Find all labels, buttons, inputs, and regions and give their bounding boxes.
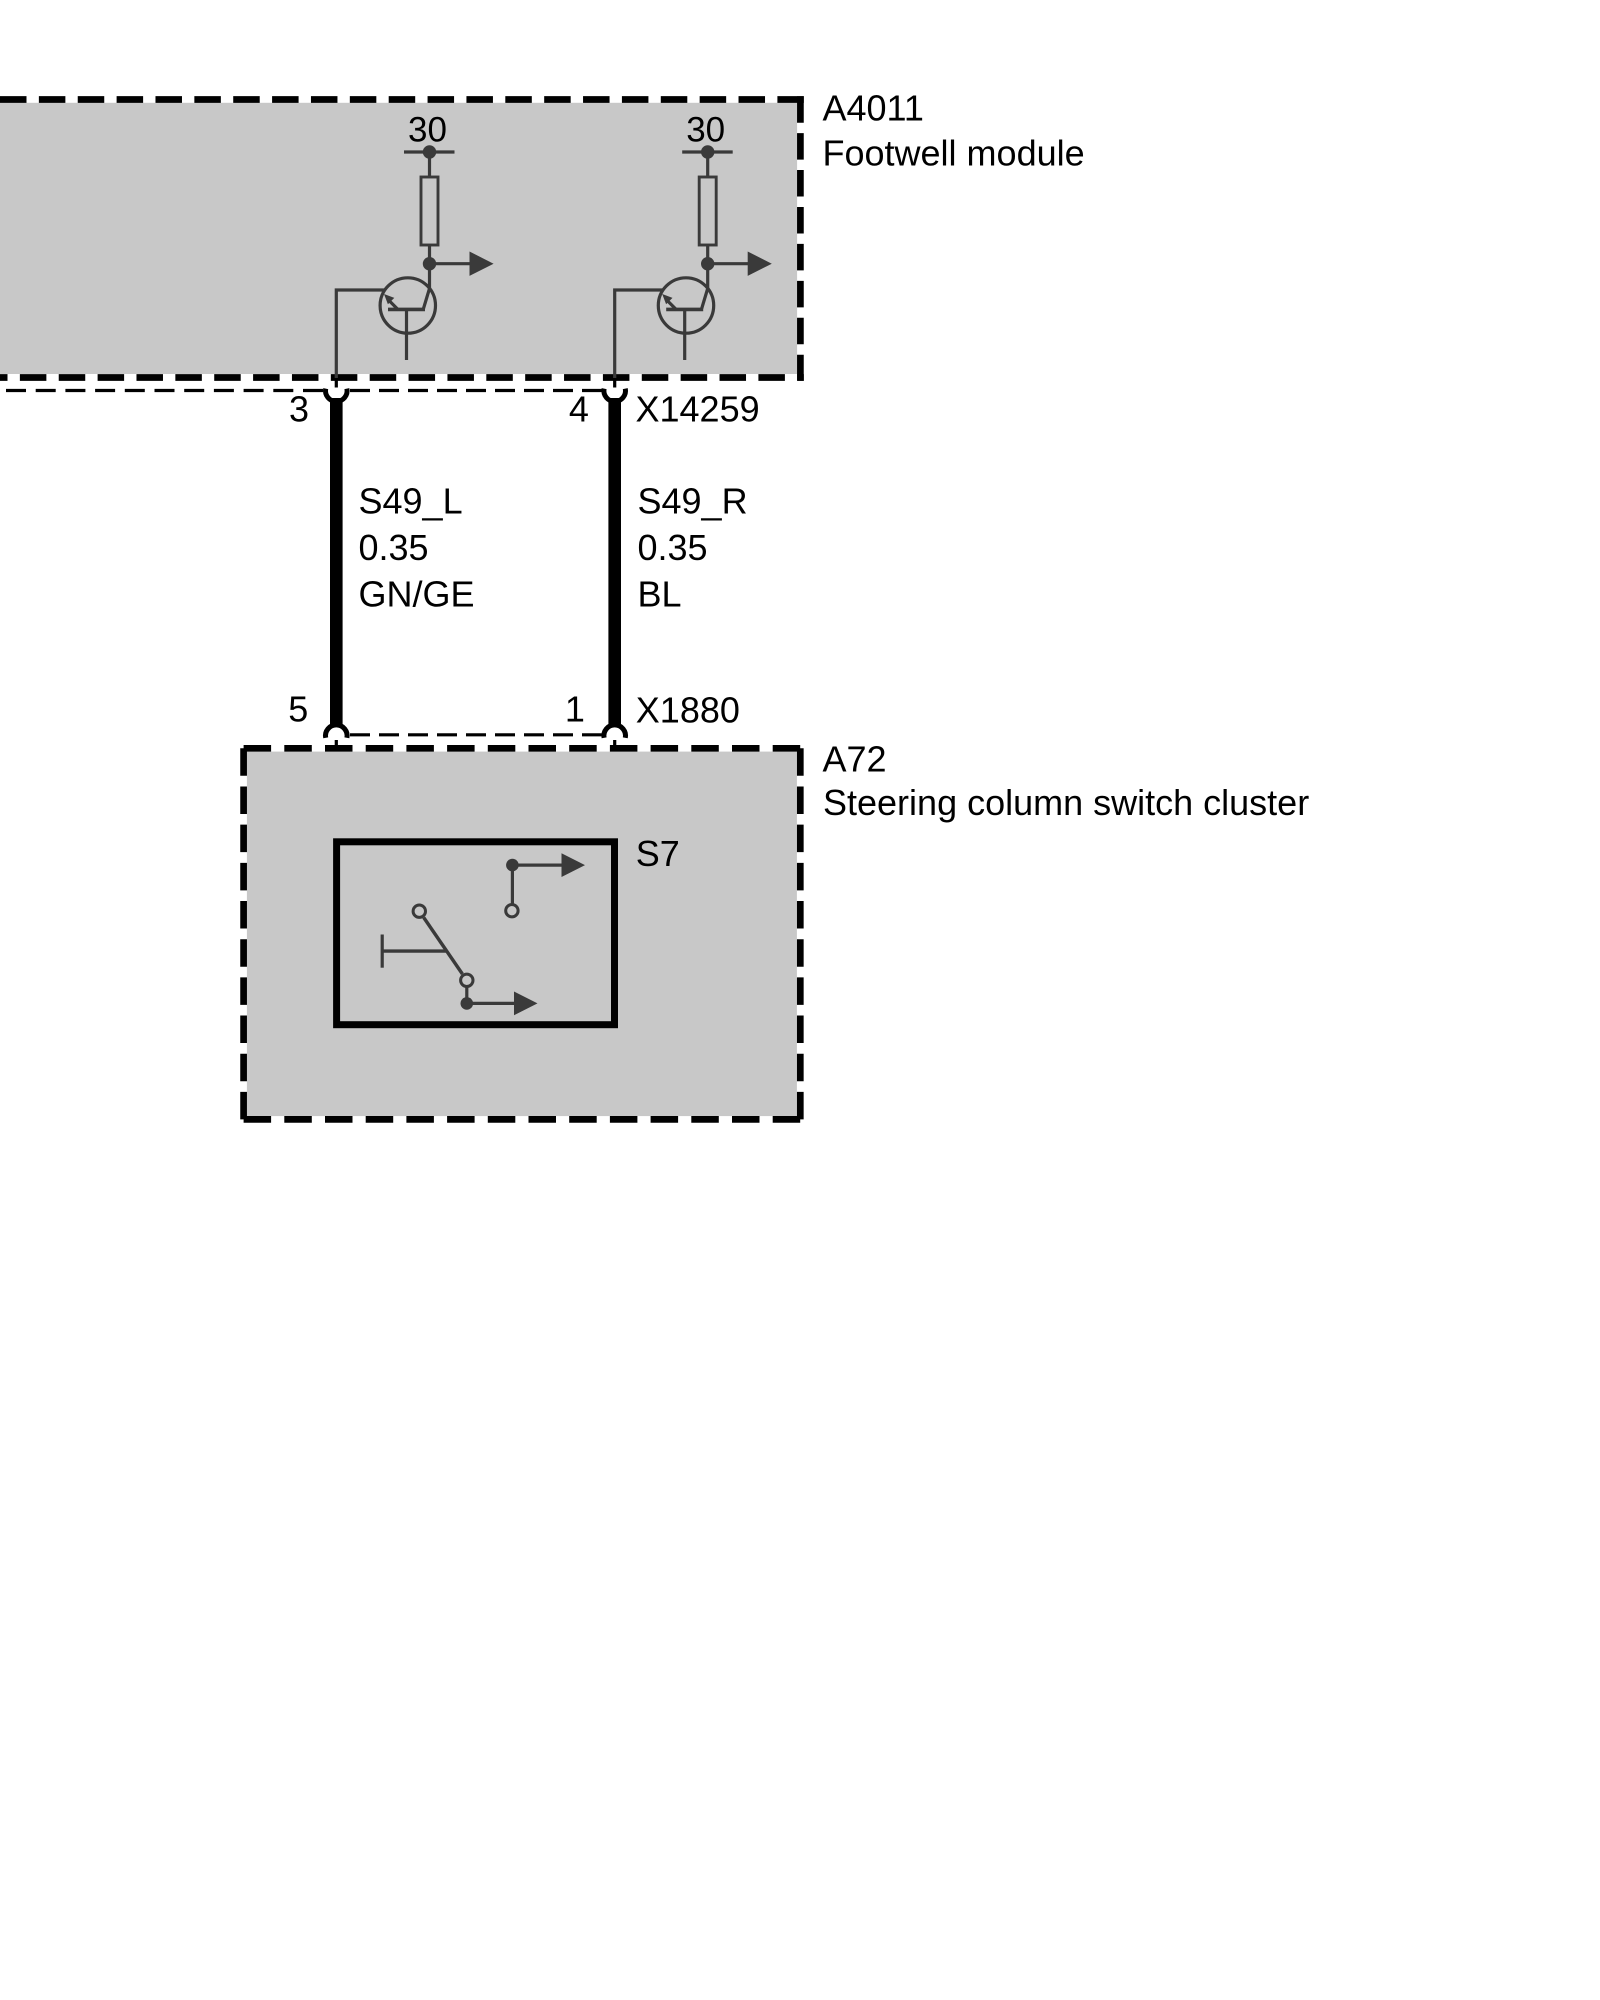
- svg-text:X1880: X1880: [636, 690, 740, 731]
- svg-text:GN/GE: GN/GE: [359, 574, 475, 615]
- svg-text:30: 30: [408, 111, 447, 150]
- svg-text:1: 1: [565, 689, 585, 730]
- svg-text:5: 5: [288, 689, 308, 730]
- svg-text:0.35: 0.35: [638, 527, 708, 568]
- svg-text:Steering column switch cluster: Steering column switch cluster: [823, 782, 1309, 823]
- svg-text:X14259: X14259: [636, 389, 760, 430]
- svg-text:3: 3: [289, 389, 309, 430]
- svg-text:S49_L: S49_L: [359, 480, 463, 521]
- svg-text:A72: A72: [823, 738, 887, 779]
- svg-text:BL: BL: [638, 574, 682, 615]
- svg-text:4: 4: [569, 389, 589, 430]
- svg-text:A4011: A4011: [823, 88, 924, 129]
- svg-text:S49_R: S49_R: [638, 480, 748, 521]
- svg-text:0.35: 0.35: [359, 527, 429, 568]
- svg-text:30: 30: [686, 111, 725, 150]
- svg-text:Footwell module: Footwell module: [823, 133, 1085, 174]
- svg-text:S7: S7: [636, 833, 680, 874]
